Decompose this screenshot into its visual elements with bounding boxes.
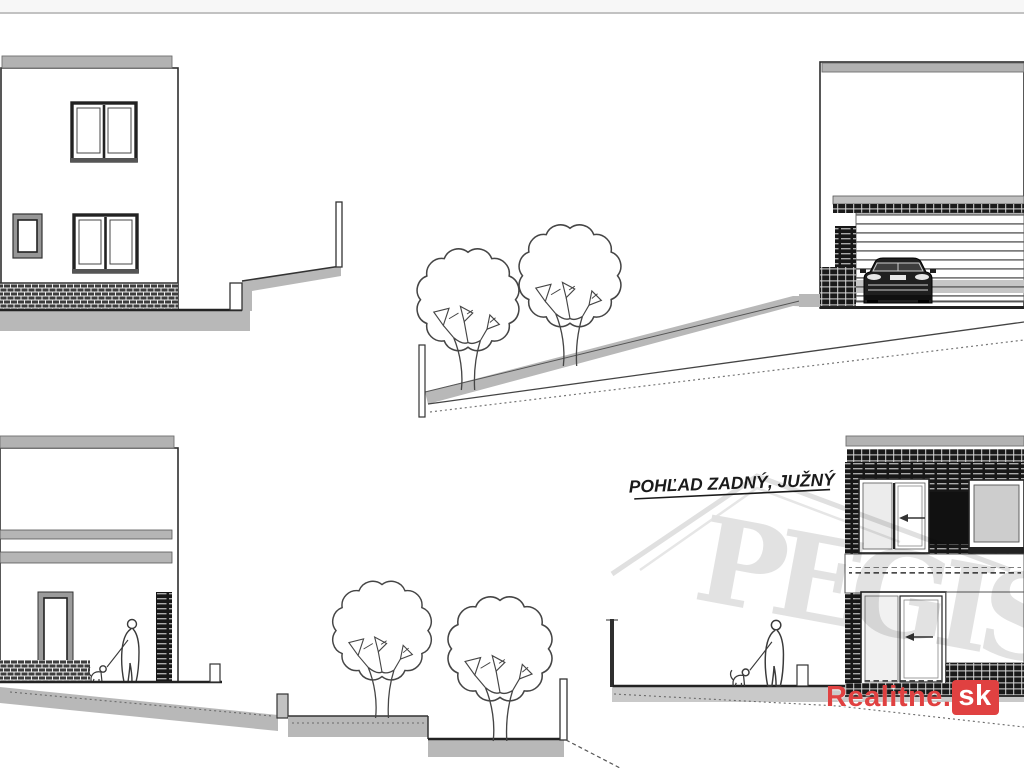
- plinth-block: [820, 267, 856, 307]
- elevation-drawing: POHĽAD ZADNÝ, JUŽNÝ: [0, 0, 1024, 768]
- ground-ledge: [799, 294, 820, 307]
- person-with-dog-icon: [731, 620, 784, 686]
- terrain-line: [428, 322, 1024, 404]
- roof-band: [846, 436, 1024, 446]
- slope-band: [0, 687, 278, 731]
- house-wall: [0, 448, 178, 682]
- garage-lintel: [833, 196, 1024, 204]
- logo-prefix: Realitne.: [826, 681, 951, 714]
- elevation-bottom-left: [0, 436, 222, 682]
- boundary-post: [336, 202, 342, 267]
- brick-plinth: [0, 660, 90, 682]
- boundary-post: [419, 345, 425, 417]
- tree-icon: [519, 225, 621, 366]
- boundary-post: [560, 679, 567, 740]
- lower-right-panel: [946, 592, 1024, 663]
- side-clad-strip: [845, 593, 861, 688]
- logo-suffix-badge: sk: [952, 680, 998, 715]
- house-south-elevation: [845, 436, 1024, 696]
- tree-icon: [333, 581, 432, 718]
- terrace-lower: [428, 739, 564, 757]
- roof-band: [0, 436, 174, 448]
- double-window-lower: [72, 215, 139, 274]
- retaining-wall-edge: [610, 619, 614, 687]
- view-title-group: POHĽAD ZADNÝ, JUŽNÝ: [628, 468, 836, 499]
- tree-icon: [448, 597, 552, 741]
- retaining-post: [797, 665, 808, 686]
- elevation-top-right-garage: [799, 62, 1024, 308]
- roof-band: [2, 56, 172, 68]
- architectural-drawing-page: POHĽAD ZADNÝ, JUŽNÝ: [0, 0, 1024, 768]
- double-window-upper: [70, 103, 138, 163]
- view-title: POHĽAD ZADNÝ, JUŽNÝ: [628, 468, 836, 496]
- slab-band: [0, 530, 172, 539]
- retaining-post: [230, 283, 242, 310]
- slope-band: [425, 296, 820, 404]
- roof-band: [822, 63, 1024, 72]
- tree-icon: [417, 249, 519, 390]
- retaining-post: [210, 664, 220, 682]
- small-window: [13, 214, 42, 258]
- slope-dashed-line: [566, 740, 620, 768]
- fascia-hatch-band: [847, 449, 1024, 462]
- slab-band: [0, 552, 172, 563]
- slab-dotted-row: [849, 567, 1021, 574]
- hatched-pillar: [156, 592, 172, 682]
- window-upper-right: [969, 480, 1024, 553]
- brick-base: [0, 283, 178, 310]
- curb-block: [277, 694, 288, 718]
- elevation-top-left: [0, 56, 342, 331]
- ground-fill: [0, 311, 250, 331]
- sliding-door-upper: [859, 479, 929, 553]
- sliding-door-lower: [861, 592, 946, 686]
- terrace-upper: [288, 716, 428, 737]
- garage-hatch-band: [833, 204, 1024, 213]
- logo-realitne: Realitne.sk: [826, 680, 999, 715]
